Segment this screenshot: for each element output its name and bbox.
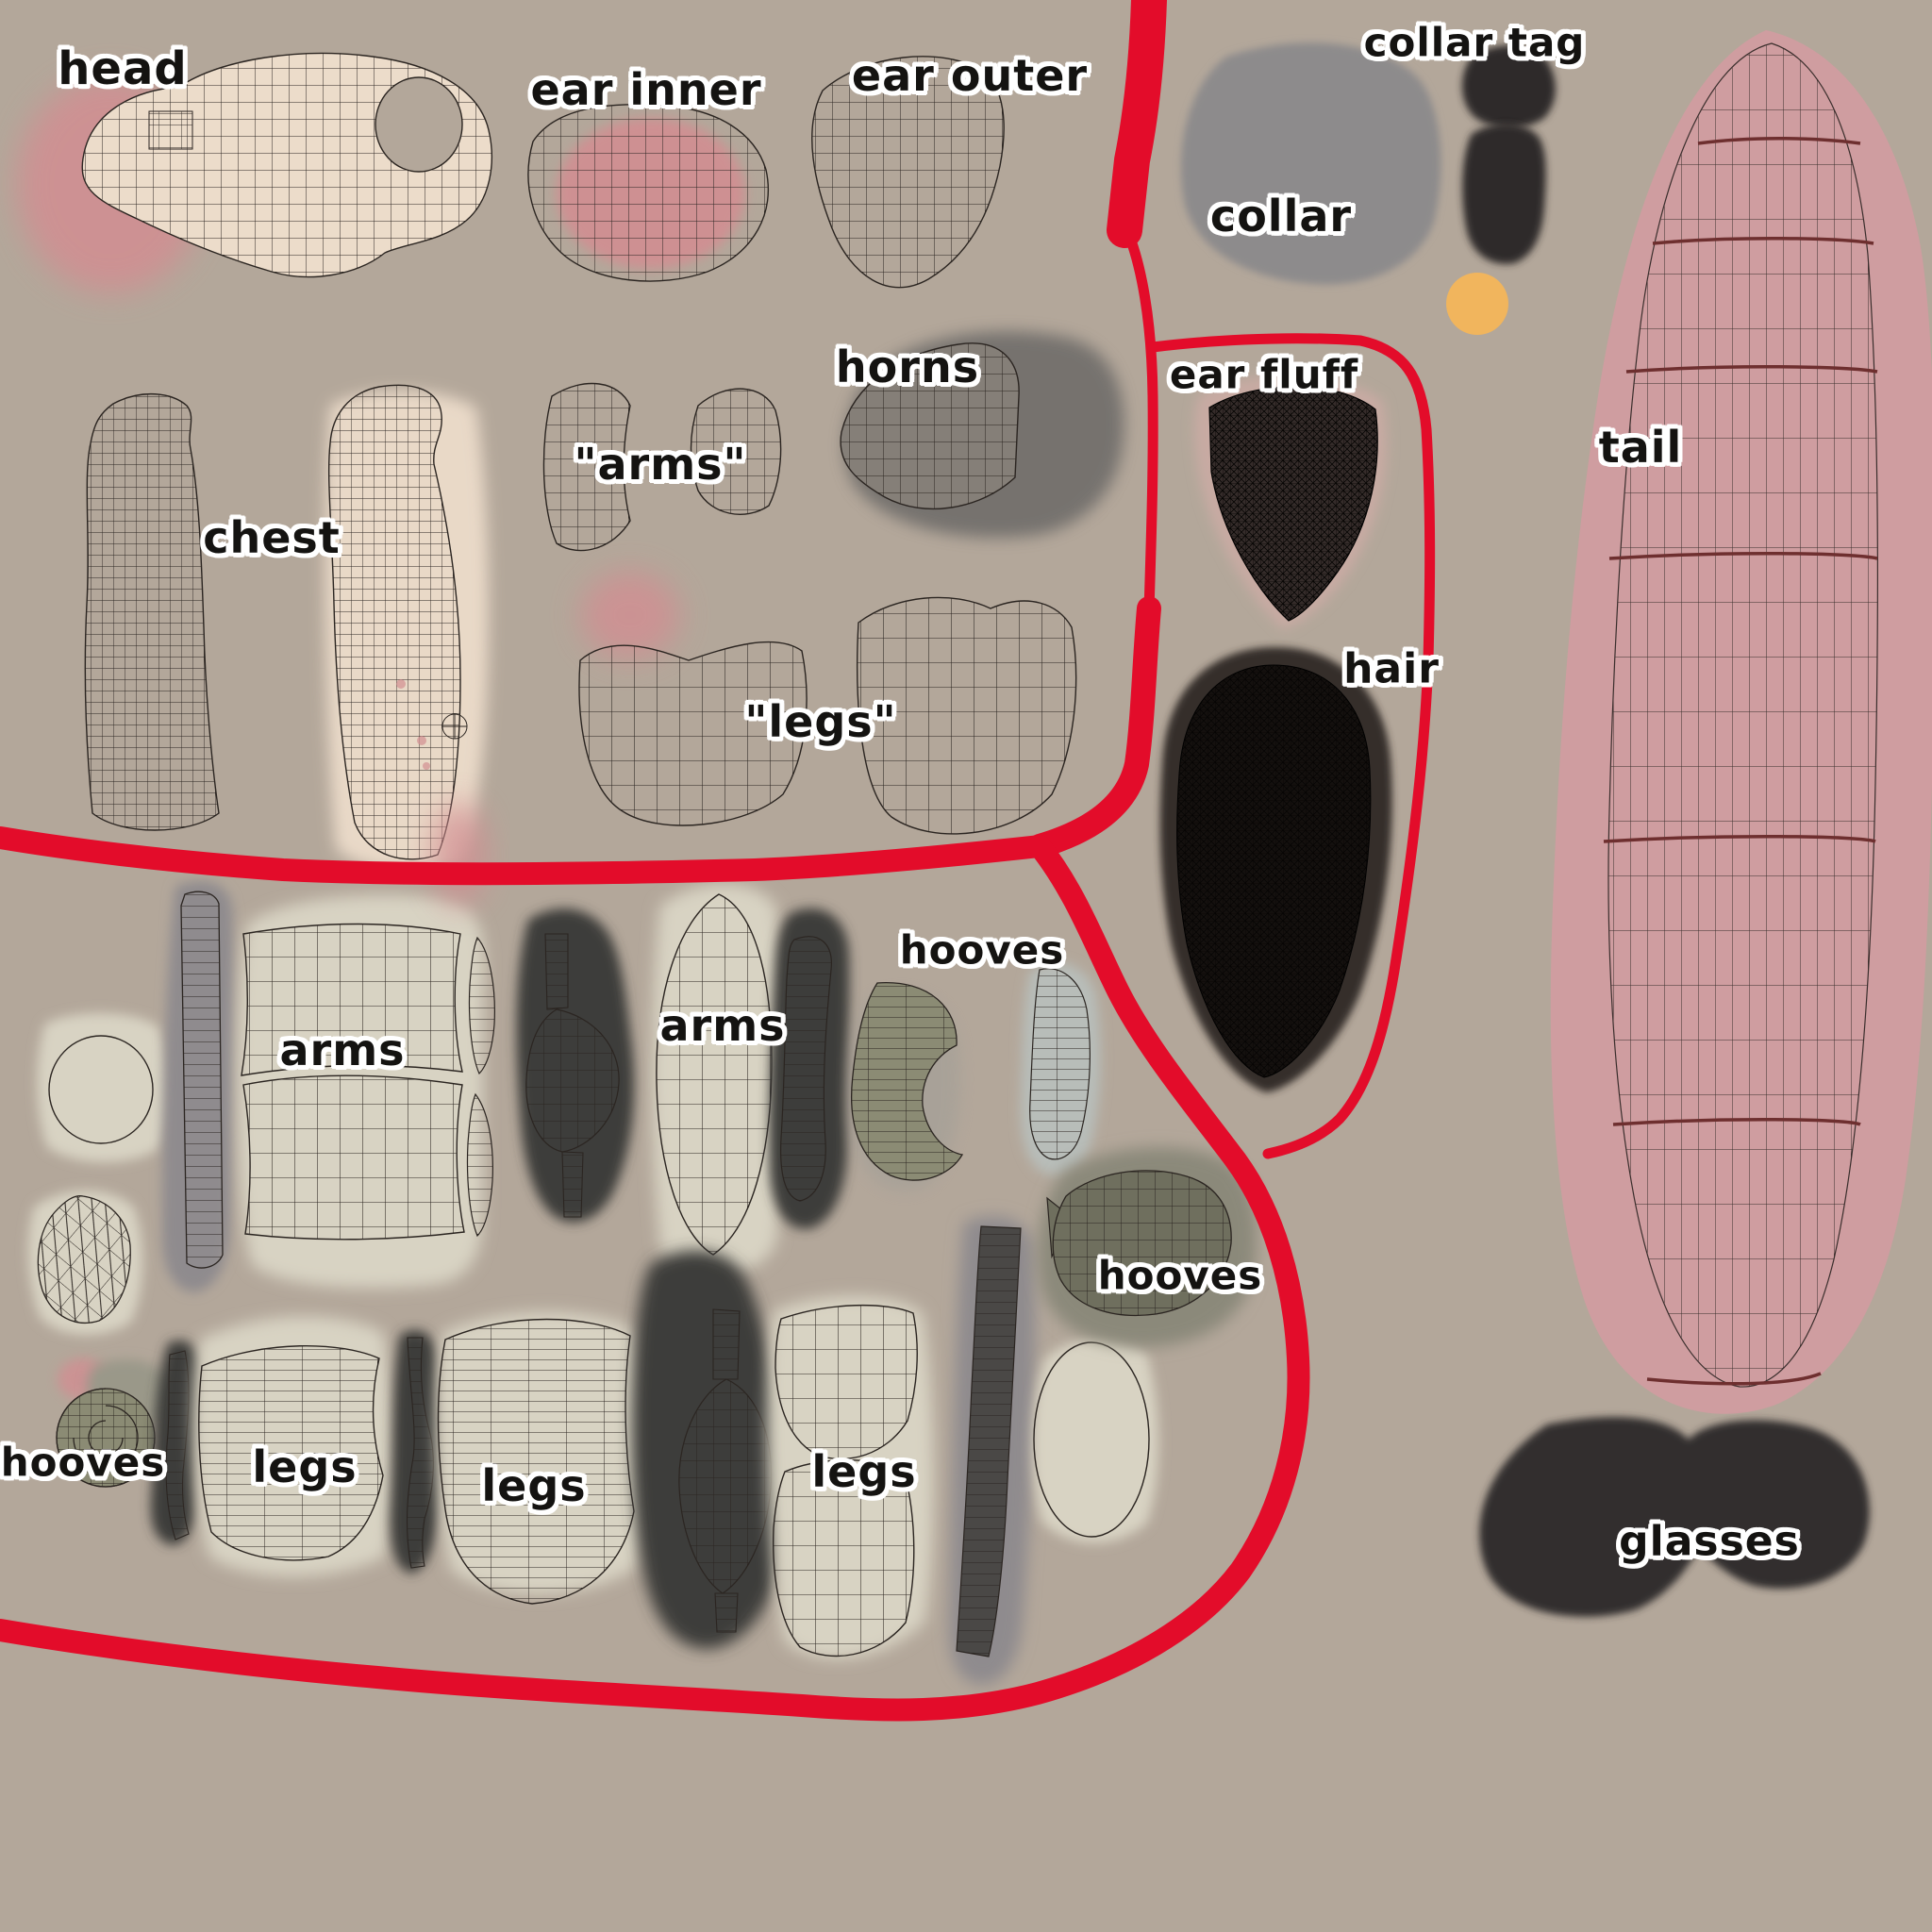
label-ear-inner: ear inner	[530, 64, 761, 115]
delta-tri-mesh	[38, 1196, 130, 1324]
label-chest: chest	[203, 512, 341, 563]
label-horns: horns	[836, 341, 979, 392]
chest-bottom-pink-smear	[431, 802, 488, 906]
collar-tag-orange-dot	[1446, 273, 1508, 335]
legs3-mesh-top	[775, 1306, 917, 1459]
ear-inner-mesh	[528, 105, 768, 281]
label-collar-tag: collar tag	[1364, 20, 1586, 66]
red-line-top-vertical	[1124, 0, 1149, 230]
label-ear-outer: ear outer	[852, 50, 1088, 101]
circle-outline-piece	[49, 1036, 153, 1143]
crescent-strip-mesh	[469, 938, 494, 1074]
red-line-thin-vertical	[1126, 228, 1153, 611]
circle2-backdrop	[1033, 1338, 1158, 1543]
label-legs-quoted: "legs"	[744, 696, 896, 747]
crescent-strip-mesh	[467, 1094, 492, 1236]
label-legs-3: legs	[811, 1446, 916, 1497]
label-hooves-1: hooves	[900, 927, 1064, 974]
collar-tag-island	[1446, 45, 1556, 335]
label-hooves-2: hooves	[1098, 1253, 1262, 1299]
chest-pink-dot	[423, 762, 430, 770]
label-collar: collar	[1210, 191, 1352, 241]
label-tail: tail	[1599, 422, 1683, 473]
ear-fluff-island	[1194, 375, 1387, 629]
label-arms-1: arms	[279, 1024, 405, 1075]
label-glasses: glasses	[1619, 1518, 1800, 1566]
strap-ladder-mesh	[181, 891, 223, 1268]
center-spindle-top-strip	[713, 1309, 740, 1379]
collar-blob	[1181, 42, 1441, 284]
ear-inner-island	[528, 105, 768, 281]
sleeve-strip-mesh	[781, 937, 832, 1201]
arms-square-mesh-bottom	[243, 1075, 464, 1240]
chest-island	[85, 385, 488, 871]
spindle-top-strip	[545, 934, 568, 1009]
red-line-horizontal	[0, 838, 1040, 874]
uv-map-stage: head ear inner ear outer collar tag coll…	[0, 0, 1932, 1932]
chest-left-mesh	[85, 394, 219, 830]
chest-pink-dot	[396, 679, 406, 689]
tail-island	[1551, 30, 1932, 1414]
label-ear-fluff: ear fluff	[1170, 352, 1358, 398]
center-spindle-bottom-strip	[715, 1593, 738, 1632]
collar-island	[1181, 42, 1441, 284]
collar-tag-blob-bottom	[1462, 124, 1545, 264]
chest-pink-dot	[417, 736, 426, 745]
ear-fluff-scribble-mesh	[1209, 387, 1377, 621]
head-eye-dense-patch	[149, 111, 192, 149]
label-hair: hair	[1343, 645, 1440, 693]
legs-row-islands	[57, 1147, 1257, 1685]
spindle-bottom-strip	[562, 1152, 583, 1217]
hair-island	[1160, 647, 1392, 1092]
label-arms-2: arms	[659, 1000, 785, 1051]
chest-navel-detail	[442, 714, 467, 739]
label-arms-quoted: "arms"	[575, 439, 747, 490]
hoof-banana-mesh	[1030, 969, 1091, 1159]
label-hooves-3: hooves	[1, 1440, 165, 1486]
label-legs-1: legs	[252, 1441, 357, 1492]
label-head: head	[58, 42, 187, 95]
label-legs-2: legs	[481, 1460, 586, 1511]
